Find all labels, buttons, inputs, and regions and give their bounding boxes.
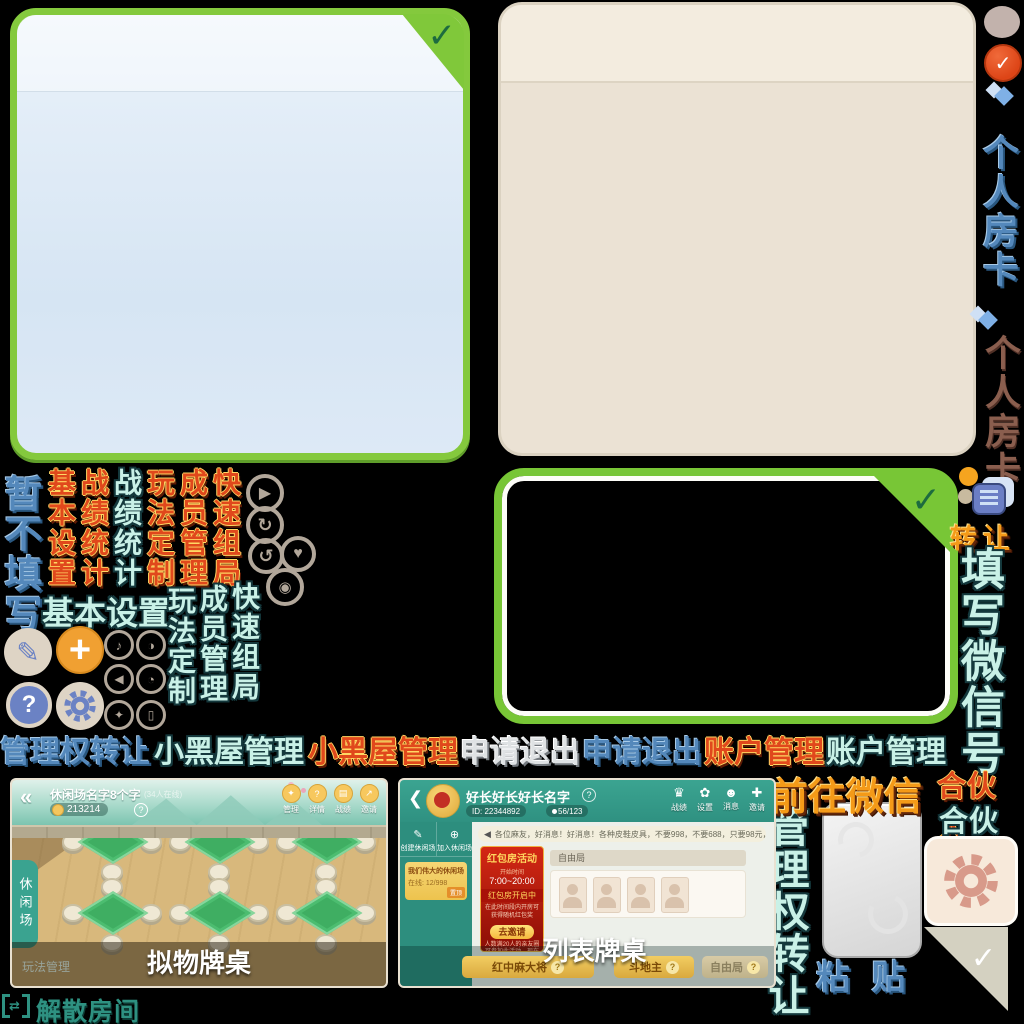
add-circle-button[interactable]: + <box>56 626 104 674</box>
free-game-card[interactable] <box>550 870 746 918</box>
personal-room-card-label-brown[interactable]: 个人房卡 <box>982 334 1018 490</box>
panel-header-strip <box>501 5 973 83</box>
invite-button[interactable]: ✚ 邀请 <box>744 785 770 813</box>
trophy-icon: ♛ <box>673 785 685 801</box>
avatar-placeholder <box>661 877 689 913</box>
avatar-placeholder <box>593 877 621 913</box>
room-list-icon[interactable] <box>972 477 1016 517</box>
game-type-button-free[interactable]: 自由局? <box>702 956 768 978</box>
sprite-sheet-stage: ✓ ✓ ✓ 个人房卡 个人房卡 转让 填写微信号 合伙人 合伙人 <box>0 0 1024 1024</box>
club-id-capsule: ID: 22344892 <box>466 805 526 817</box>
contrast-icon[interactable]: ◑ <box>136 630 166 660</box>
pin-badge: 置顶 <box>447 887 465 898</box>
online-count: (34人在线) <box>144 789 182 800</box>
invite-icon: ↗ <box>360 784 379 803</box>
selection-frame-panel: ✓ <box>494 468 958 724</box>
back-button[interactable]: ❮ <box>408 788 423 809</box>
back-button[interactable]: « <box>20 784 32 810</box>
settings-button[interactable]: ✿ 设置 <box>692 785 718 813</box>
tab-member-manage-cyan[interactable]: 成员管理 <box>198 584 226 704</box>
header-bar: « 休闲场名字8个字 (34人在线) 213214 ? ✦ 管理 ? 详情 ▤ … <box>12 780 386 825</box>
menu-blackroom-red[interactable]: 小黑屋管理 <box>308 727 458 771</box>
gear-icon <box>942 852 1000 910</box>
side-tab-casual[interactable]: 休闲场 <box>12 860 38 948</box>
message-button[interactable]: ☻ 消息 <box>718 785 744 813</box>
promo-desc: 在此时间段内开房可获得随机红包奖 <box>483 905 541 921</box>
avatar-placeholder <box>627 877 655 913</box>
diamond-gem-icon <box>972 304 1000 330</box>
manage-icon: ✦ <box>282 784 301 803</box>
announcement-text: 各位麻友，好消息！好消息！各种皮鞋皮具，不要998，不要688，只要98元，只要… <box>495 829 766 840</box>
help-icon[interactable]: ? <box>134 803 148 817</box>
horn-icon[interactable]: ◀ <box>104 664 134 694</box>
promo-status: 红包房开启中 <box>481 889 543 902</box>
corner-check-badge-beige[interactable]: ✓ <box>924 927 1008 1011</box>
help-chip[interactable]: ? <box>747 961 760 974</box>
gear-icon: ✿ <box>700 785 711 801</box>
my-room-name: 我们伟大的休闲场 <box>405 862 467 876</box>
mahjong-table[interactable] <box>280 886 368 946</box>
detail-button[interactable]: ? 详情 <box>304 784 330 815</box>
exit-door-icon[interactable]: ▯ <box>136 700 166 730</box>
room-panel-beige <box>498 2 976 456</box>
skip-fill-label[interactable]: 暂不填写 <box>0 474 38 634</box>
panel-header-strip <box>17 15 463 92</box>
settings-circle-button[interactable] <box>56 682 104 730</box>
join-room-button[interactable]: ⊕ 加入休闲场 <box>437 822 472 856</box>
menu-label-row: 管理权转让 小黑屋管理 小黑屋管理 申请退出 申请退出 账户管理 账户管理 <box>0 727 946 771</box>
menu-account-cyan[interactable]: 账户管理 <box>826 727 946 771</box>
screenshot-list-table: ❮ 好长好长好长名字 ? ID: 22344892 56/123 ♛ 战绩 ✿ … <box>398 778 776 988</box>
avatar-placeholder-circle <box>984 6 1020 38</box>
tab-record-stats-red[interactable]: 战绩统计 <box>79 468 107 588</box>
mahjong-table[interactable] <box>173 886 261 946</box>
mahjong-table[interactable] <box>66 886 154 946</box>
promo-time: 7:00~20:00 <box>481 876 543 886</box>
help-circle-button[interactable]: ? <box>6 682 52 728</box>
coin-icon <box>52 804 64 816</box>
header-buttons: ✦ 管理 ? 详情 ▤ 战绩 ↗ 邀请 <box>278 784 382 815</box>
red-packet-promo-panel[interactable]: 红包房活动 开始时间 7:00~20:00 红包房开启中 在此时间段内开房可获得… <box>480 846 544 952</box>
promo-time-label: 开始时间 <box>481 867 543 876</box>
gear-icon <box>63 689 97 723</box>
record-button[interactable]: ♛ 战绩 <box>666 785 692 813</box>
tab-rules-custom-cyan[interactable]: 玩法定制 <box>166 586 194 706</box>
avatar-placeholder <box>559 877 587 913</box>
club-title: 好长好长好长名字 <box>466 787 570 806</box>
message-icon: ☻ <box>724 785 738 800</box>
dial-icon[interactable]: ◔ <box>136 664 166 694</box>
goto-wechat-label[interactable]: 前往微信 <box>770 766 922 821</box>
create-room-button[interactable]: ✎ 创建休闲场 <box>400 822 437 856</box>
paste-button-label[interactable]: 粘 贴 <box>816 950 911 999</box>
detail-icon: ? <box>308 784 327 803</box>
tab-basic-settings-red[interactable]: 基本设置 <box>46 468 74 588</box>
invite-icon: ✚ <box>752 785 763 801</box>
fill-wechat-label[interactable]: 填写微信号 <box>956 546 1000 776</box>
promo-title: 红包房活动 <box>481 850 543 865</box>
record-button[interactable]: ▤ 战绩 <box>330 784 356 815</box>
room-id-capsule: 213214 <box>50 803 108 816</box>
room-title: 休闲场名字8个字 <box>50 786 141 803</box>
diamond-gem-icon <box>988 80 1016 106</box>
emote-music-icon[interactable]: ♪ <box>104 630 134 660</box>
help-icon[interactable]: ? <box>582 788 596 802</box>
plus-icon: + <box>69 629 91 672</box>
promo-invite-button[interactable]: 去邀请 <box>490 925 534 939</box>
room-panel-blue: ✓ <box>10 8 470 460</box>
mahjong-tile-back[interactable] <box>822 802 922 958</box>
menu-quit-blue[interactable]: 申请退出 <box>582 727 702 771</box>
beige-dot-icon <box>958 489 973 504</box>
check-icon: ✓ <box>995 51 1012 76</box>
pencil-icon: ✎ <box>16 636 39 669</box>
plus-icon: ⊕ <box>450 829 459 841</box>
tab-member-manage-red[interactable]: 成员管理 <box>178 468 206 588</box>
corner-check-badge[interactable]: ✓ <box>873 475 951 553</box>
stone-ledge <box>12 825 386 838</box>
caption-list-table: 列表牌桌 <box>542 931 646 968</box>
menu-account-red[interactable]: 账户管理 <box>704 727 824 771</box>
personal-room-card-label-blue[interactable]: 个人房卡 <box>980 134 1016 290</box>
tab-record-stats-cyan[interactable]: 战绩统计 <box>112 468 140 588</box>
manage-button[interactable]: ✦ 管理 <box>278 784 304 815</box>
tab-basic-settings-horizontal[interactable]: 基本设置 <box>42 588 170 634</box>
tab-quick-match-cyan[interactable]: 快速组局 <box>230 582 258 702</box>
question-icon: ? <box>22 691 37 719</box>
tab-rules-custom-red[interactable]: 玩法定制 <box>145 468 173 588</box>
room-id-value: 213214 <box>67 804 100 815</box>
menu-management-transfer[interactable]: 管理权转让 <box>0 727 150 771</box>
rules-manage-link[interactable]: 玩法管理 <box>22 958 70 975</box>
member-count-capsule: 56/123 <box>546 805 588 817</box>
check-icon: ✓ <box>428 16 457 56</box>
tab-quick-match-red[interactable]: 快速组局 <box>211 468 239 588</box>
dissolve-room-icon[interactable]: ⇄ <box>2 994 30 1020</box>
announcement-bar: ◀ 各位麻友，好消息！好消息！各种皮鞋皮具，不要998，不要688，只要98元，… <box>478 826 766 842</box>
edit-circle-button[interactable]: ✎ <box>4 628 52 676</box>
key-icon[interactable]: ✦ <box>104 700 134 730</box>
settings-tile-button[interactable] <box>924 836 1018 926</box>
person-icon <box>552 809 557 814</box>
check-icon: ✓ <box>971 941 996 976</box>
screenshot-physical-table: « 休闲场名字8个字 (34人在线) 213214 ? ✦ 管理 ? 详情 ▤ … <box>10 778 388 988</box>
counter-icon[interactable]: ◉ <box>266 568 304 606</box>
favorite-heart-icon[interactable]: ♥ <box>280 536 316 572</box>
swap-arrows-glyph: ⇄ <box>9 998 20 1014</box>
edit-icon: ✎ <box>413 829 422 841</box>
menu-quit-silver[interactable]: 申请退出 <box>460 727 580 771</box>
club-badge-icon <box>426 784 460 818</box>
dissolve-room-label[interactable]: 解散房间 <box>36 992 140 1024</box>
speaker-icon: ◀ <box>484 829 491 840</box>
invite-button[interactable]: ↗ 邀请 <box>356 784 382 815</box>
help-chip[interactable]: ? <box>666 961 679 974</box>
menu-blackroom-cyan[interactable]: 小黑屋管理 <box>154 727 304 771</box>
header-bar: ❮ 好长好长好长名字 ? ID: 22344892 56/123 ♛ 战绩 ✿ … <box>400 780 774 822</box>
record-icon: ▤ <box>334 784 353 803</box>
my-room-card[interactable]: 我们伟大的休闲场 在线: 12/998 置顶 <box>405 862 467 900</box>
caption-physical-table: 拟物牌桌 <box>147 943 251 980</box>
free-game-section-header: 自由局 <box>550 850 746 866</box>
header-buttons: ♛ 战绩 ✿ 设置 ☻ 消息 ✚ 邀请 <box>666 785 770 813</box>
confirm-check-button[interactable]: ✓ <box>984 44 1022 82</box>
check-icon: ✓ <box>911 479 941 521</box>
